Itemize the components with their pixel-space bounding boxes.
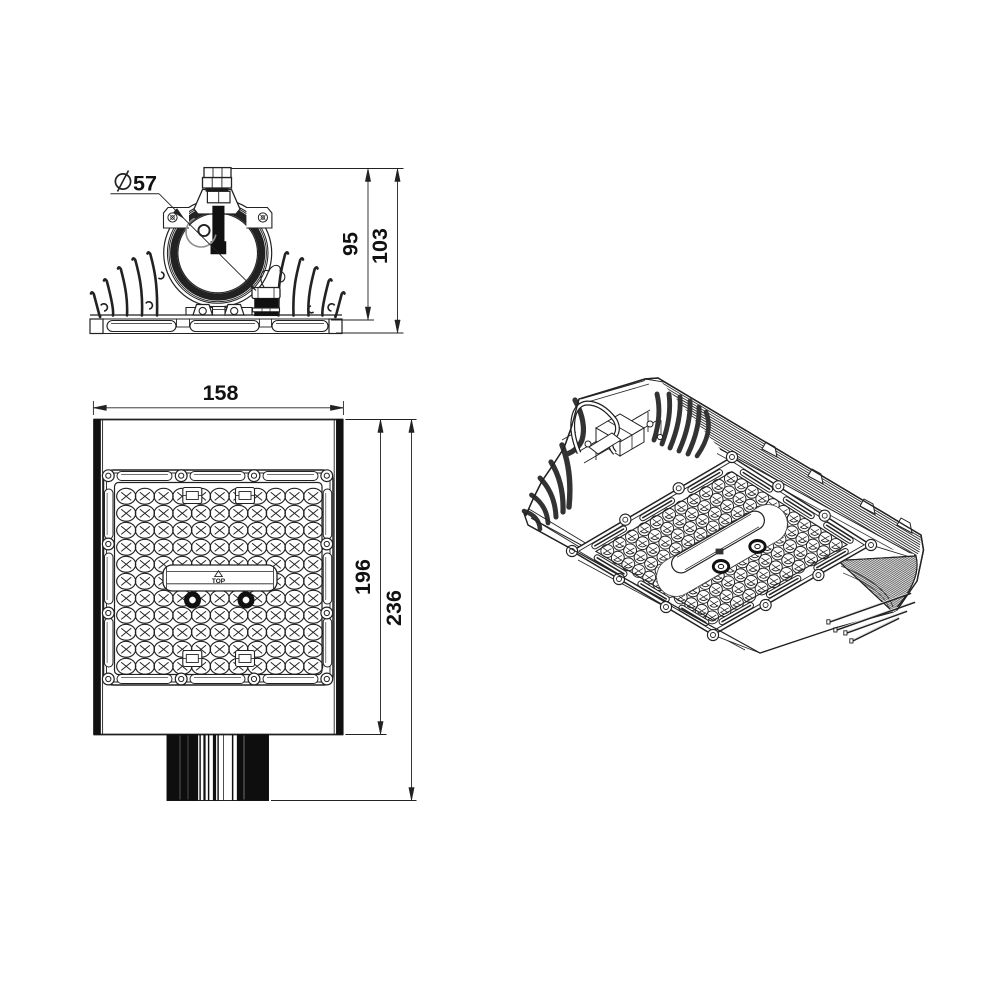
svg-text:158: 158 <box>203 381 239 405</box>
svg-text:95: 95 <box>339 232 363 256</box>
svg-text:57: 57 <box>133 172 157 196</box>
svg-text:196: 196 <box>351 559 375 595</box>
svg-text:TOP: TOP <box>212 578 226 585</box>
svg-text:236: 236 <box>382 590 406 626</box>
svg-text:103: 103 <box>368 228 392 264</box>
